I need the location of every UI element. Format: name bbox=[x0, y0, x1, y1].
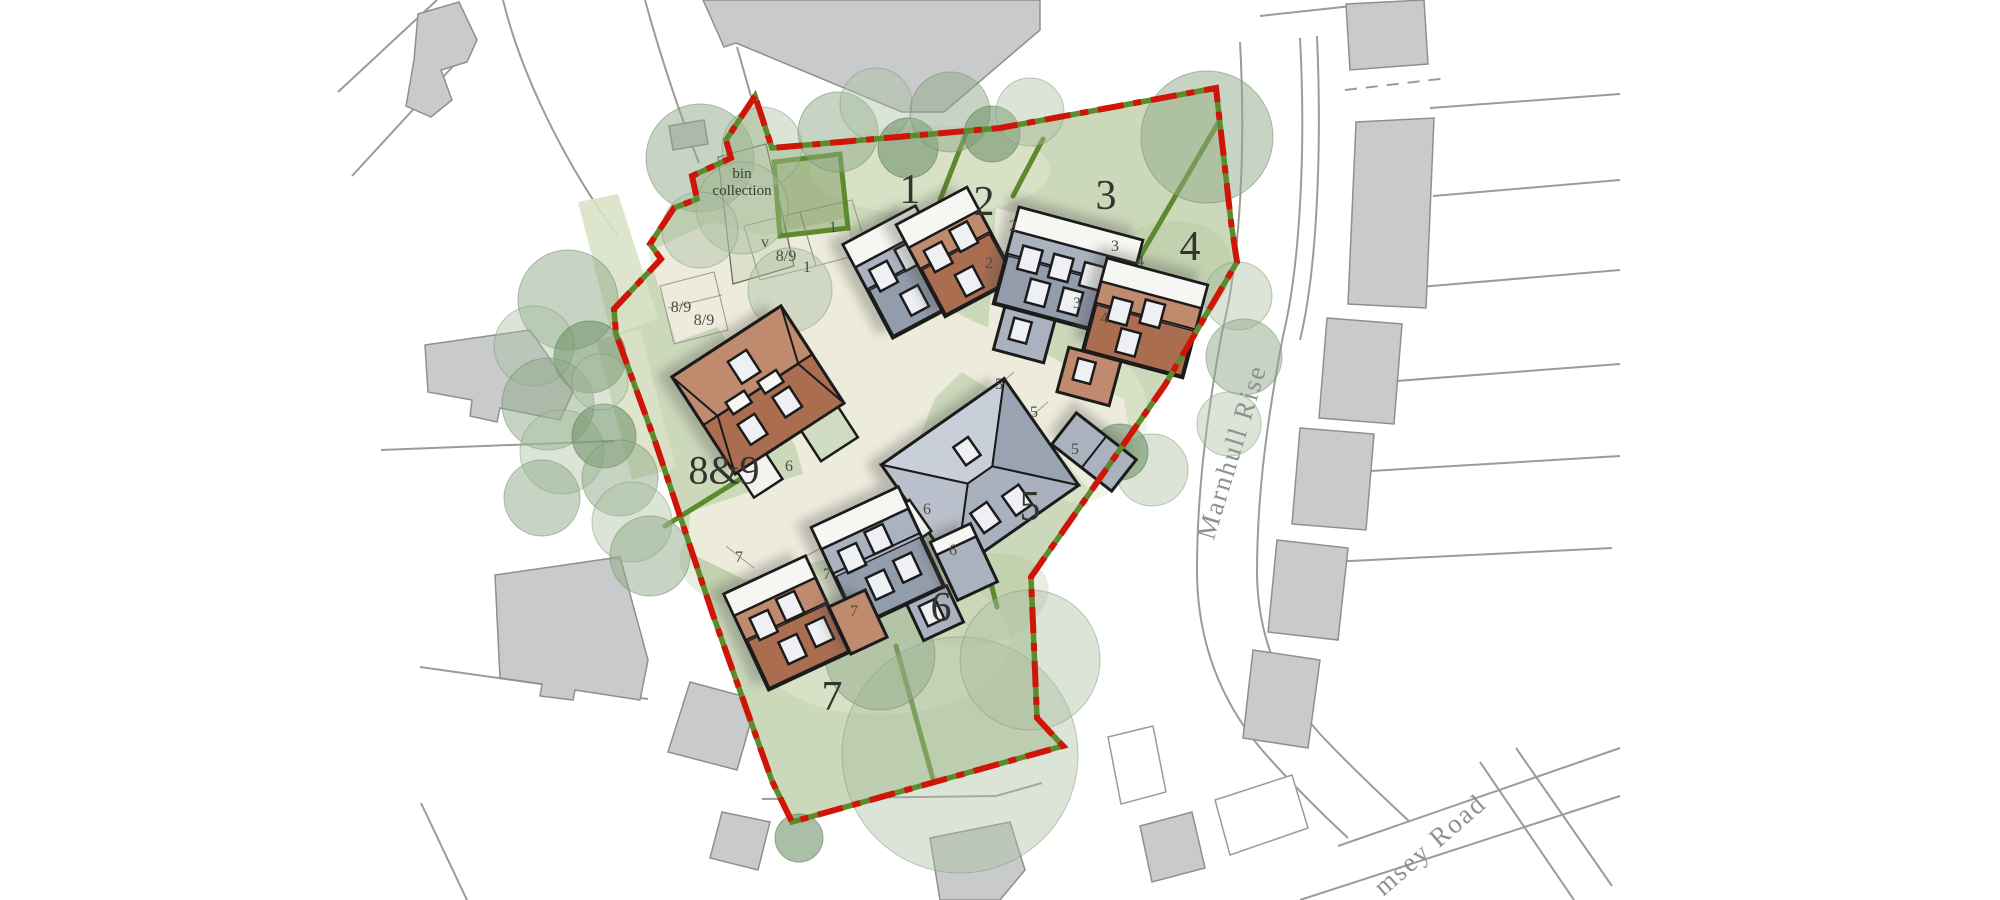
parking-label-8-9-c: 8/9 bbox=[694, 312, 714, 330]
plot-label-7: 7 bbox=[822, 673, 843, 721]
parking-label-2-b: 2 bbox=[985, 255, 993, 273]
parking-label-v: v bbox=[761, 234, 769, 252]
plot-label-5: 5 bbox=[1020, 483, 1041, 531]
parking-label-5-b: 5 bbox=[1030, 404, 1038, 422]
plot-label-2: 2 bbox=[974, 178, 995, 226]
plot-label-3: 3 bbox=[1096, 172, 1117, 220]
plot-label-4: 4 bbox=[1180, 223, 1201, 271]
parking-label-8-9-a: 8/9 bbox=[776, 248, 796, 266]
parking-label-6-a: 6 bbox=[785, 458, 793, 476]
plot-label-6: 6 bbox=[931, 584, 952, 632]
parking-label-6-b: 6 bbox=[923, 501, 931, 519]
parking-label-1-b: 1 bbox=[803, 259, 811, 277]
parking-label-6-c: 6 bbox=[949, 542, 957, 560]
plot-label-1: 1 bbox=[900, 166, 921, 214]
parking-label-1-a: 1 bbox=[829, 219, 837, 237]
site-plan-drawing bbox=[0, 0, 2000, 900]
parking-label-2-a: 2 bbox=[1009, 218, 1017, 236]
parking-label-5-c: 5 bbox=[1071, 441, 1079, 459]
parking-label-7-c: 7 bbox=[850, 603, 858, 621]
plot-label-8-9: 8&9 bbox=[688, 447, 759, 494]
parking-label-7-a: 7 bbox=[735, 549, 743, 567]
parking-label-5-a: 5 bbox=[995, 376, 1003, 394]
parking-label-7-b: 7 bbox=[823, 566, 831, 584]
parking-label-3-a: 3 bbox=[1111, 238, 1119, 256]
bin-collection-label: bin collection bbox=[702, 166, 782, 201]
site-plan-canvas: bin collection 1 2 3 4 5 6 7 8&9 v 8/9 1… bbox=[0, 0, 2000, 900]
parking-label-3-b: 3 bbox=[1073, 295, 1081, 313]
parking-label-8-9-b: 8/9 bbox=[671, 299, 691, 317]
parking-label-4-b: 4 bbox=[1100, 310, 1108, 328]
parking-label-4-a: 4 bbox=[1136, 253, 1144, 271]
